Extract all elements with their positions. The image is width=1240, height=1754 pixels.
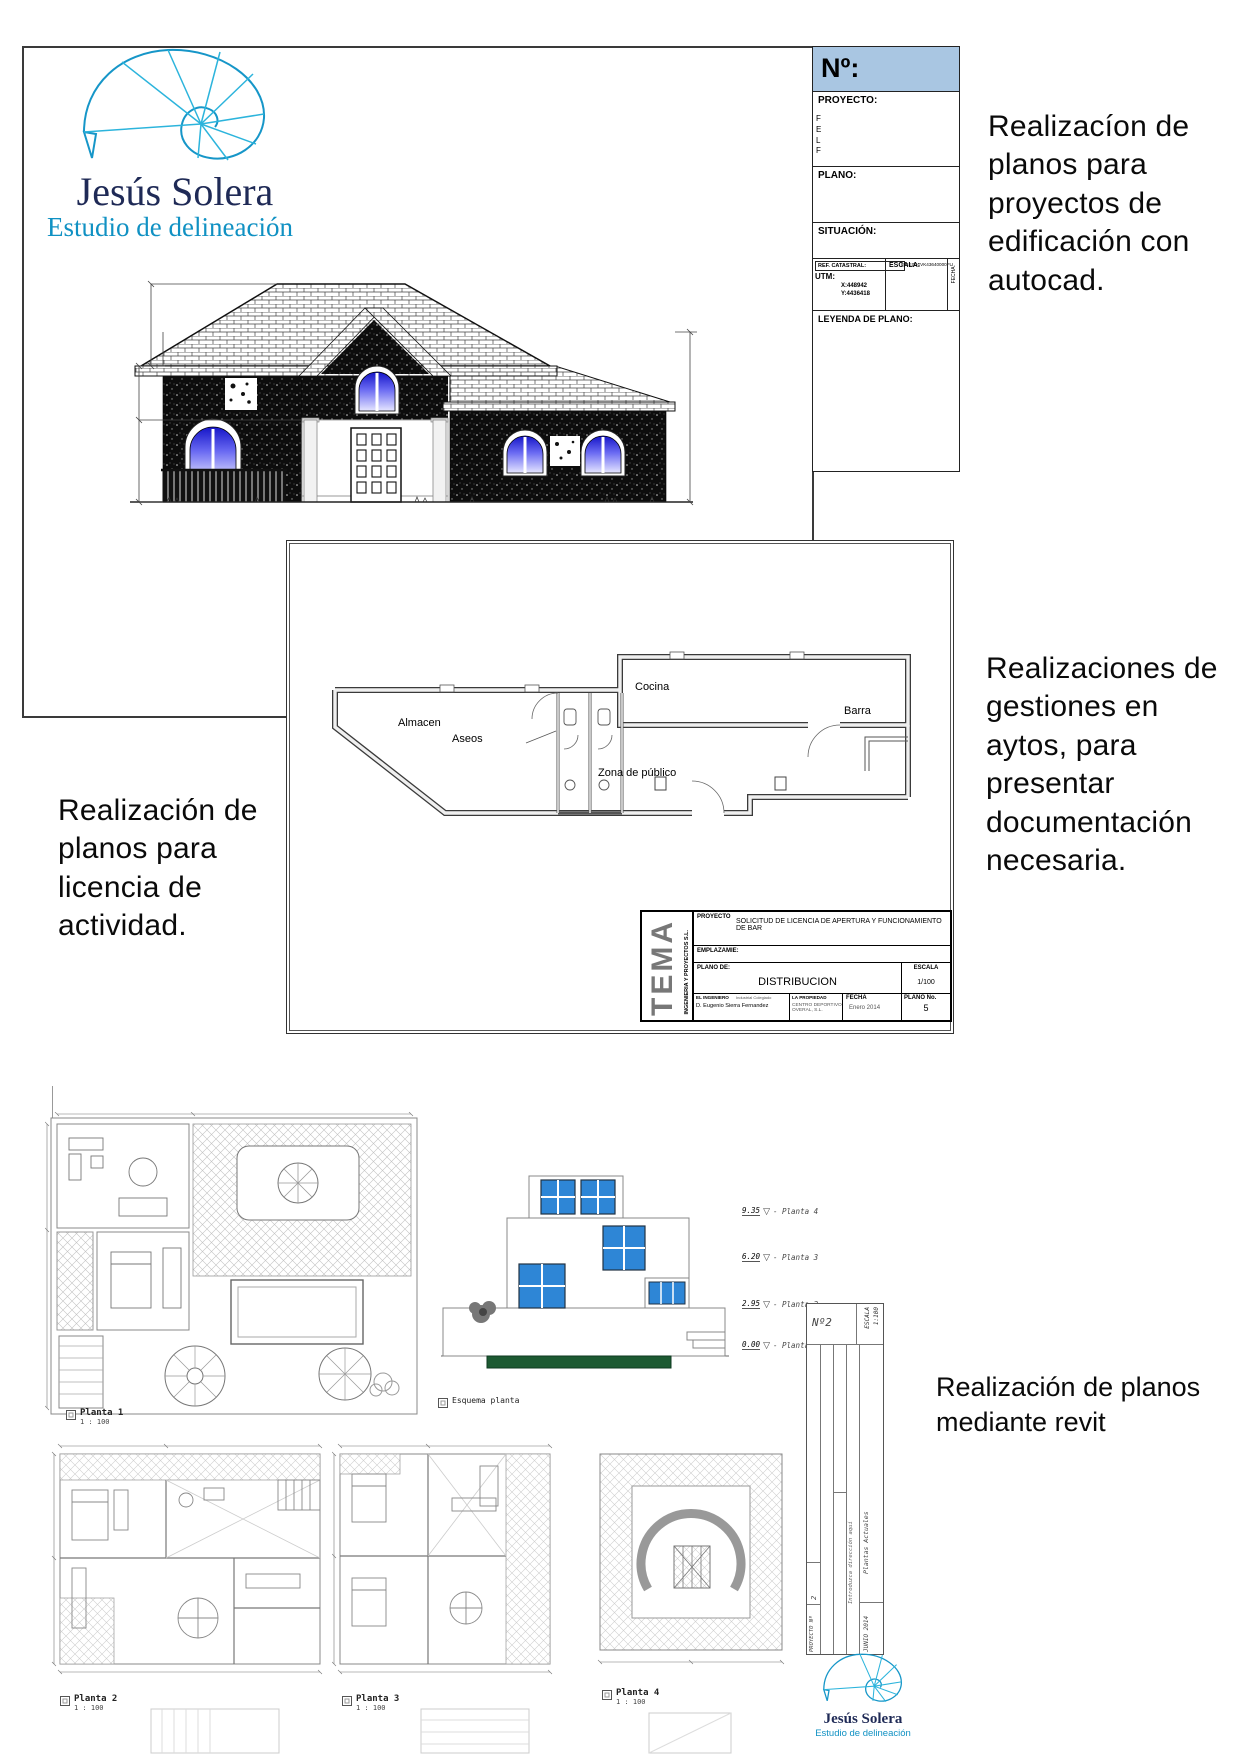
tb3-escala-label: ESCALA	[864, 1307, 871, 1329]
room-label-almacen: Almacen	[398, 717, 441, 729]
plan-label-icon	[342, 1696, 352, 1706]
utm-x: X:448942	[841, 283, 867, 289]
revit-elevation	[435, 1162, 745, 1402]
level-marker: 9.35▽ Planta 4	[742, 1206, 818, 1216]
tb2-propiedad-value: CENTRO DEPORTIVO OVERAL, S.L.	[792, 1003, 842, 1013]
stone-patch-left	[225, 378, 257, 410]
bar-plan-drawing: Cocina Barra Almacen Aseos Zona de públi…	[320, 585, 920, 930]
cutoff-drawing-fragment	[150, 1708, 280, 1754]
utm-label: UTM:	[815, 272, 835, 281]
tb2-proyecto-value: SOLICITUD DE LICENCIA DE APERTURA Y FUNC…	[736, 918, 946, 932]
caption-autocad: Realizacíon de planos para proyectos de …	[988, 108, 1238, 300]
room-label-barra: Barra	[844, 705, 871, 717]
nautilus-logo	[70, 40, 280, 170]
footer-logo: Jesús Solera Estudio de delineación	[798, 1650, 928, 1739]
revit-titleblock: Nº2 ESCALA 1:100 Plantas Actuales Introd…	[806, 1303, 884, 1655]
tb2-propiedad-label: LA PROPIEDAD	[792, 995, 827, 1000]
footer-brand-name: Jesús Solera	[798, 1711, 928, 1728]
house-elevation-drawing	[105, 272, 705, 534]
nautilus-logo-small	[815, 1650, 911, 1706]
tb2-emplazamiento-label: EMPLAZAMIE:	[697, 948, 739, 954]
tb3-proyecto-label: PROYECTO Nº	[809, 1608, 815, 1652]
tb3-fecha: JUNIO 2014	[863, 1606, 870, 1652]
tb2-plano-label: PLANO DE:	[697, 965, 730, 971]
plano-label: PLANO:	[813, 167, 959, 181]
plan-label-planta1: Planta 1 1 : 100	[66, 1408, 123, 1426]
caption-revit: Realización de planos mediante revit	[936, 1370, 1240, 1440]
tb2-escala-value: 1/100	[902, 979, 950, 986]
room-label-cocina: Cocina	[635, 681, 669, 693]
leyenda-label: LEYENDA DE PLANO:	[813, 311, 959, 324]
level-flag-icon: ▽	[763, 1341, 770, 1350]
tb3-escala-value: 1:100	[873, 1307, 880, 1325]
cutoff-drawing-fragment	[420, 1708, 530, 1754]
stone-patch-right	[550, 436, 580, 466]
level-flag-icon: ▽	[763, 1253, 770, 1262]
level-flag-icon: ▽	[763, 1207, 770, 1216]
caption-licencia: Realización de planos para licencia de a…	[58, 792, 308, 946]
tb2-ingeniero-sub: Industrial Colegiado	[736, 995, 771, 1000]
tb2-plano-value: DISTRIBUCION	[694, 976, 901, 988]
tb2-ingeniero-label: EL INGENIERO	[696, 995, 729, 1000]
revit-plan-3	[332, 1438, 567, 1688]
tb2-plano-no-value: 5	[902, 1003, 950, 1013]
caption-gestiones: Realizaciones de gestiones en aytos, par…	[986, 650, 1236, 880]
proyecto-side-letters: F E L F	[816, 114, 821, 157]
tema-titleblock: TEMA INGENIERIA Y PROYECTOS S.L. PROYECT…	[640, 910, 952, 1022]
level-marker: 6.20▽ Planta 3	[742, 1252, 818, 1262]
sheet-number-label: Nº:	[813, 47, 959, 92]
room-label-zona: Zona de público	[598, 767, 676, 779]
tb2-plano-no-label: PLANO No.	[904, 995, 936, 1001]
revit-plan-2	[48, 1438, 338, 1688]
tb2-ingeniero-value: D. Eugenio Sierra Fernandez	[696, 1003, 768, 1009]
brand-name: Jesús Solera	[30, 168, 320, 215]
cutoff-drawing-fragment	[648, 1712, 732, 1754]
tb3-plantas: Plantas Actuales	[862, 1444, 870, 1574]
tb2-proyecto-label: PROYECTO	[697, 914, 731, 920]
level-flag-icon: ▽	[763, 1300, 770, 1309]
window-right-1	[503, 430, 547, 476]
plan-label-icon	[60, 1696, 70, 1706]
footer-brand-tagline: Estudio de delineación	[798, 1728, 928, 1739]
situacion-label: SITUACIÓN:	[813, 223, 959, 237]
fecha-label: FECHA:	[951, 265, 957, 283]
tb3-numero: Nº2	[812, 1316, 832, 1329]
plan-label-planta3: Planta 3 1 : 100	[342, 1694, 399, 1712]
tema-logo-sub: INGENIERIA Y PROYECTOS S.L.	[684, 930, 690, 1014]
room-label-aseos: Aseos	[452, 733, 483, 745]
plan-label-planta2: Planta 2 1 : 100	[60, 1694, 117, 1712]
tema-logo: TEMA	[646, 919, 680, 1016]
revit-site-plan	[45, 1112, 425, 1422]
portfolio-page: Jesús Solera Estudio de delineación	[0, 0, 1240, 1754]
revit-plan-4	[592, 1446, 792, 1676]
window-right-2	[581, 430, 625, 476]
tb2-fecha-value: Enero 2014	[849, 1005, 880, 1011]
tb2-escala-label: ESCALA	[902, 965, 950, 971]
brand-tagline: Estudio de delineación	[15, 212, 325, 243]
escala-label: ESCALA:	[889, 262, 920, 269]
plan-label-icon	[66, 1410, 76, 1420]
tb3-direccion: Introduzca dirección aquí	[848, 1454, 854, 1604]
window-gable	[355, 366, 399, 414]
plan-label-icon	[602, 1690, 612, 1700]
autocad-titleblock: Nº: PROYECTO: F E L F PLANO: SITUACIÓN: …	[812, 46, 960, 472]
plan-label-planta4: Planta 4 1 : 100	[602, 1688, 659, 1706]
proyecto-label: PROYECTO:	[813, 92, 959, 106]
esquema-label: Esquema planta	[438, 1396, 519, 1408]
utm-y: Y:4436418	[841, 291, 870, 297]
esquema-icon	[438, 1398, 448, 1408]
tb3-proyecto-value: 2	[810, 1566, 818, 1600]
tb2-fecha-label: FECHA	[846, 995, 867, 1001]
